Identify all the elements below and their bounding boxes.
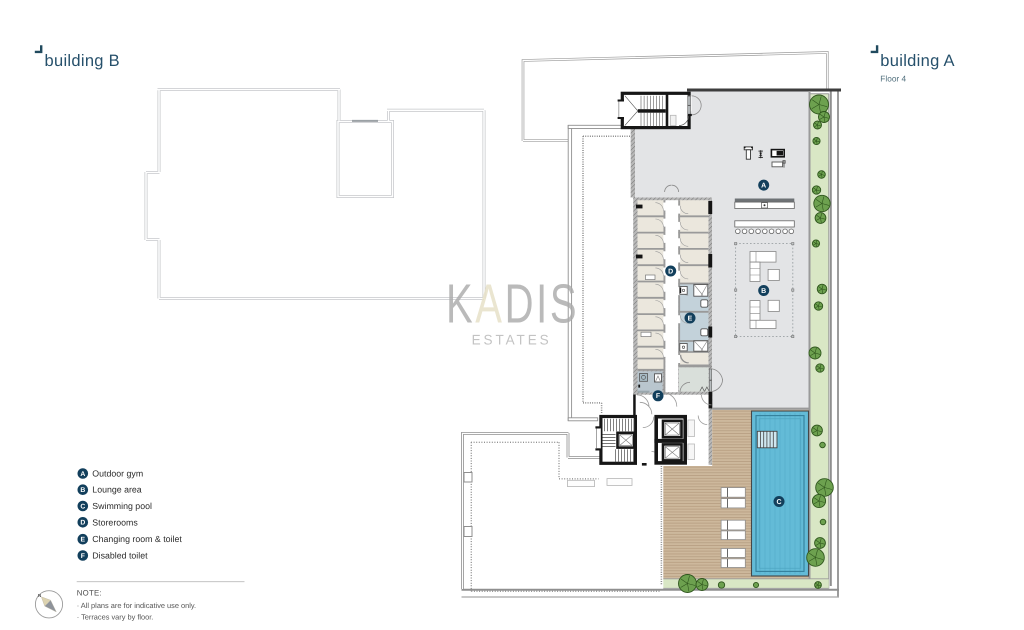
svg-text:B: B bbox=[761, 288, 766, 295]
svg-text:· Terraces vary by floor.: · Terraces vary by floor. bbox=[77, 613, 154, 622]
svg-text:D: D bbox=[668, 268, 673, 275]
svg-text:Swimming pool: Swimming pool bbox=[92, 501, 152, 511]
svg-text:C: C bbox=[776, 499, 781, 506]
svg-text:C: C bbox=[80, 503, 85, 510]
svg-text:NOTE:: NOTE: bbox=[77, 589, 102, 598]
svg-text:Lounge area: Lounge area bbox=[92, 485, 142, 495]
svg-text:building A: building A bbox=[880, 52, 955, 70]
svg-text:ESTATES: ESTATES bbox=[472, 332, 552, 348]
svg-text:D: D bbox=[80, 520, 85, 527]
svg-text:Outdoor gym: Outdoor gym bbox=[92, 469, 143, 479]
svg-text:A: A bbox=[80, 471, 85, 478]
svg-text:· All plans are for indicative: · All plans are for indicative use only. bbox=[77, 601, 196, 610]
svg-text:E: E bbox=[81, 537, 86, 544]
svg-text:Floor 4: Floor 4 bbox=[880, 74, 906, 84]
svg-text:N: N bbox=[38, 593, 41, 598]
svg-text:F: F bbox=[81, 553, 85, 560]
svg-text:KADIS: KADIS bbox=[446, 272, 579, 334]
svg-text:Storerooms: Storerooms bbox=[92, 517, 138, 527]
svg-text:Disabled toilet: Disabled toilet bbox=[92, 551, 148, 561]
svg-text:A: A bbox=[761, 183, 766, 190]
svg-text:B: B bbox=[80, 487, 85, 494]
svg-text:building B: building B bbox=[45, 52, 120, 70]
svg-text:E: E bbox=[688, 315, 693, 322]
svg-text:Changing room & toilet: Changing room & toilet bbox=[92, 534, 182, 544]
svg-text:F: F bbox=[656, 393, 661, 400]
